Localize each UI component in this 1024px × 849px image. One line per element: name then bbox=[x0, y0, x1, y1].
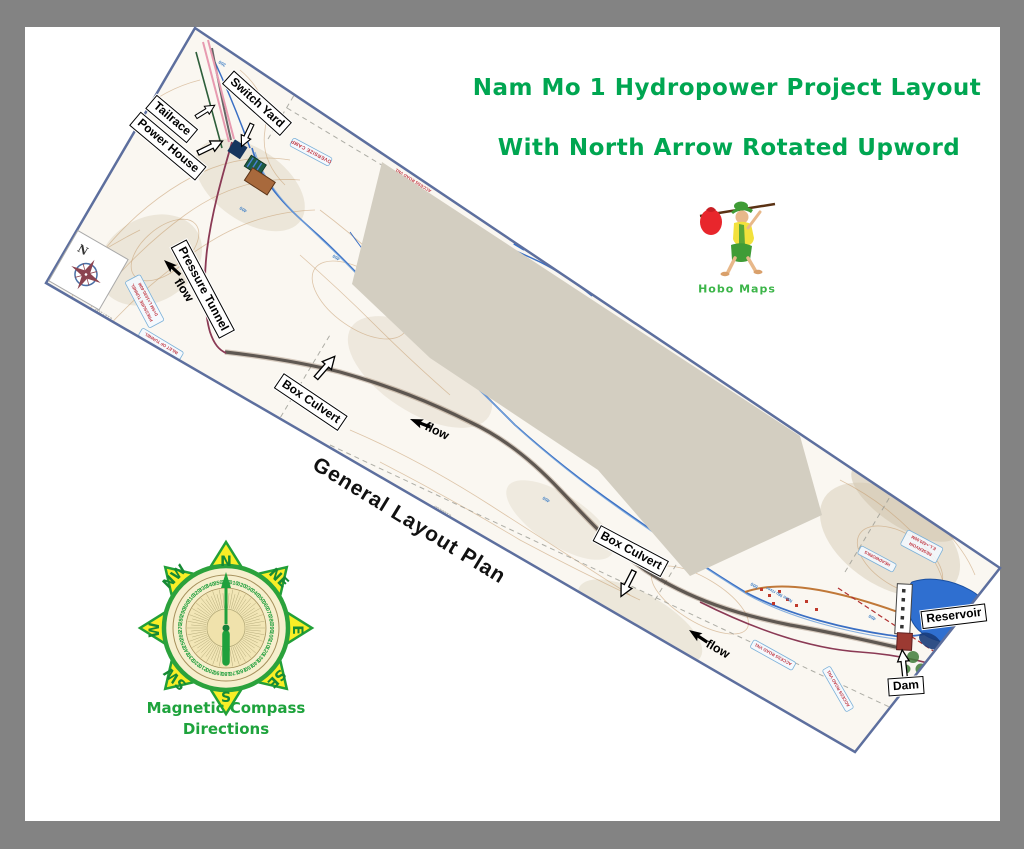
logo-caption: Hobo Maps bbox=[698, 283, 776, 296]
compass-rose-icon: 0100200300400500600700800901001101201301… bbox=[140, 542, 312, 714]
cardinal-e: E bbox=[289, 625, 305, 635]
bindle bbox=[700, 209, 722, 235]
compass-caption-line1: Magnetic Compass bbox=[147, 699, 306, 717]
page-title-line1: Nam Mo 1 Hydropower Project Layout bbox=[473, 75, 982, 101]
cardinal-n: N bbox=[220, 554, 232, 570]
compass-caption-line2: Directions bbox=[183, 720, 269, 738]
page: OVERSIZE CAMP ACCESS ROAD VN1 ACCESS ROA… bbox=[0, 0, 1024, 849]
cardinal-w: W bbox=[147, 622, 163, 637]
dam-structure bbox=[897, 633, 913, 651]
page-title-line2: With North Arrow Rotated Upword bbox=[498, 135, 961, 161]
callout-dam: Dam bbox=[887, 676, 924, 696]
spillway-structure bbox=[895, 584, 913, 635]
